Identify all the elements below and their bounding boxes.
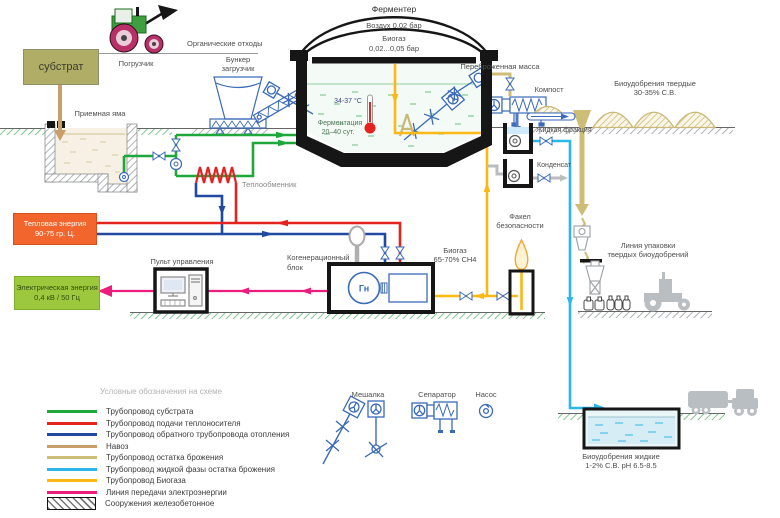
- valve-icon: [153, 152, 165, 160]
- heat-energy-box: Тепловая энергия 90-75 гр. Ц.: [13, 213, 97, 245]
- pump-icon: [120, 173, 129, 182]
- legend-label: Трубопровод субстрата: [106, 407, 193, 416]
- solid-fertilizer-piles: [593, 112, 715, 127]
- condensate-label: Конденсат: [537, 162, 571, 170]
- legend-title: Условные обозначения на схеме: [100, 387, 222, 396]
- control-panel-label: Пульт управления: [150, 257, 213, 266]
- legend-label: Трубопровод обратного трубопровода отопл…: [106, 430, 289, 439]
- solid-fertilizer-label-1: Биоудобрения твердые: [614, 79, 696, 88]
- substrate-box: субстрат: [23, 49, 99, 85]
- legend-row: Сооружения железобетонное: [47, 496, 214, 510]
- liquid-fraction-label: Жидкая фракция: [536, 127, 592, 135]
- heat-energy-line1: Тепловая энергия: [14, 219, 96, 229]
- heat-energy-line2: 90-75 гр. Ц.: [14, 229, 96, 239]
- legend-swatch-heat-return: [47, 433, 97, 436]
- digested-mass-label: Переброженная масса: [460, 62, 539, 71]
- packing-line-label-2: твердых биоудобрений: [608, 250, 689, 259]
- cogeneration-label-2: блок: [287, 263, 303, 272]
- generator-label: Гн: [359, 284, 369, 294]
- biogas-name-label: Биогаз: [382, 34, 405, 43]
- mixer-vertical-icon: [365, 401, 387, 457]
- legend-label: Навоз: [106, 442, 128, 451]
- flame-icon: [515, 240, 528, 269]
- legend-label: Трубопровод Биогаза: [106, 476, 186, 485]
- valve-icon: [381, 247, 389, 259]
- legend-row: Трубопровод подачи теплоносителя: [47, 418, 241, 430]
- electric-energy-line2: 0,4 кВ / 50 Гц: [15, 293, 99, 303]
- legend-swatch-power: [47, 491, 97, 494]
- compost-label: Компост: [534, 85, 563, 94]
- legend-swatch-liquid-phase: [47, 468, 97, 471]
- valve-icon: [506, 78, 514, 90]
- loader-tractor-icon: [110, 5, 178, 53]
- power-line: [98, 285, 329, 297]
- condensate-tank: [503, 159, 533, 188]
- loader-label: Погрузчик: [119, 59, 154, 68]
- pump-label: Насос: [475, 390, 496, 399]
- biogas-ch4-label-2: 65-70% СН4: [434, 255, 477, 264]
- pump-icon: [510, 136, 521, 147]
- legend-row: Трубопровод остатка брожения: [47, 452, 223, 464]
- fertilizer-bags: [584, 296, 630, 310]
- separator-icon: [412, 402, 457, 433]
- fermenter-title: Ферментер: [372, 4, 416, 14]
- valve-icon: [172, 139, 180, 151]
- air-pressure-label: Воздух 0,02 бар: [366, 21, 421, 30]
- computer-icon: [161, 275, 202, 306]
- fermentation-label-1: Ферментация: [318, 120, 362, 128]
- receiving-pit-label: Приемная яма: [75, 109, 126, 118]
- legend-row: Трубопровод жидкой фазы остатка брожения: [47, 464, 275, 476]
- legend-row: Трубопровод обратного трубопровода отопл…: [47, 429, 289, 441]
- legend-swatch-manure: [47, 445, 97, 448]
- pump-icon: [509, 171, 520, 182]
- legend-swatch-digestate: [47, 456, 97, 459]
- valve-icon: [540, 137, 552, 145]
- separator-label: Сепаратор: [418, 390, 456, 399]
- packing-line-label-1: Линия упаковки: [621, 241, 676, 250]
- mixer-label: Мешалка: [352, 390, 385, 399]
- tanker-truck-icon: [688, 389, 758, 416]
- legend-row: Трубопровод Биогаза: [47, 475, 186, 487]
- mixer-diagonal-icon: [323, 396, 365, 464]
- packing-line: [574, 226, 690, 312]
- liquid-fraction-tank: [503, 123, 533, 154]
- biogas-ch4-label-1: Биогаз: [443, 246, 466, 255]
- legend-swatch-heat-supply: [47, 422, 97, 425]
- pump-icon: [480, 405, 493, 418]
- legend-label: Трубопровод жидкой фазы остатка брожения: [106, 465, 275, 474]
- legend-label: Трубопровод подачи теплоносителя: [106, 419, 241, 428]
- cogeneration-label-1: Когенерационный: [287, 253, 349, 262]
- manure-feed-arrow: [54, 83, 66, 141]
- electric-energy-line1: Электрическая энергия: [15, 283, 99, 293]
- valve-icon: [460, 292, 472, 300]
- control-panel-unit: [155, 269, 207, 312]
- legend-label: Сооружения железобетонное: [105, 499, 214, 508]
- legend-swatch-concrete: [47, 497, 96, 510]
- legend-row: Трубопровод субстрата: [47, 406, 193, 418]
- flare-label-2: безопасности: [496, 221, 543, 230]
- pump-icon: [171, 159, 182, 170]
- valve-icon: [497, 292, 509, 300]
- loading-hopper-icon: [210, 77, 266, 134]
- flare-label-1: Факел: [509, 212, 531, 221]
- substrate-label: субстрат: [24, 60, 98, 75]
- heat-exchanger-label: Теплообменник: [242, 180, 296, 189]
- temperature-label: 34-37 °С: [334, 98, 362, 106]
- substrate-pipes: [120, 132, 297, 182]
- liquid-fertilizer-label-2: 1-2% С.В. рН 6.5-8.5: [585, 461, 656, 470]
- organic-waste-label: Органические отходы: [187, 39, 263, 48]
- legend-row: Навоз: [47, 441, 128, 453]
- biogas-pressure-label: 0,02...0,05 бар: [369, 44, 419, 53]
- legend-swatch-substrate: [47, 410, 97, 413]
- hopper-label-1: Бункер: [226, 55, 250, 64]
- liquid-fertilizer-tank: [584, 409, 679, 448]
- solid-fertilizer-label-2: 30-35% С.В.: [634, 88, 677, 97]
- valve-icon: [538, 174, 550, 182]
- engine-icon: [389, 274, 427, 302]
- field-tractor-icon: [644, 272, 690, 312]
- liquid-fertilizer-label-1: Биоудобрения жидкие: [582, 452, 660, 461]
- legend-swatch-biogas: [47, 479, 97, 482]
- valve-icon: [396, 247, 404, 259]
- hopper-label-2: загрузчик: [222, 64, 255, 73]
- electric-energy-box: Электрическая энергия 0,4 кВ / 50 Гц: [14, 276, 100, 310]
- legend-label: Трубопровод остатка брожения: [106, 453, 223, 462]
- legend-equipment-icons: [323, 396, 493, 464]
- fermentation-label-2: 20–40 сут.: [322, 129, 355, 137]
- biogas-plant-diagram: Гн: [0, 0, 780, 518]
- cogeneration-unit: Гн: [329, 227, 433, 313]
